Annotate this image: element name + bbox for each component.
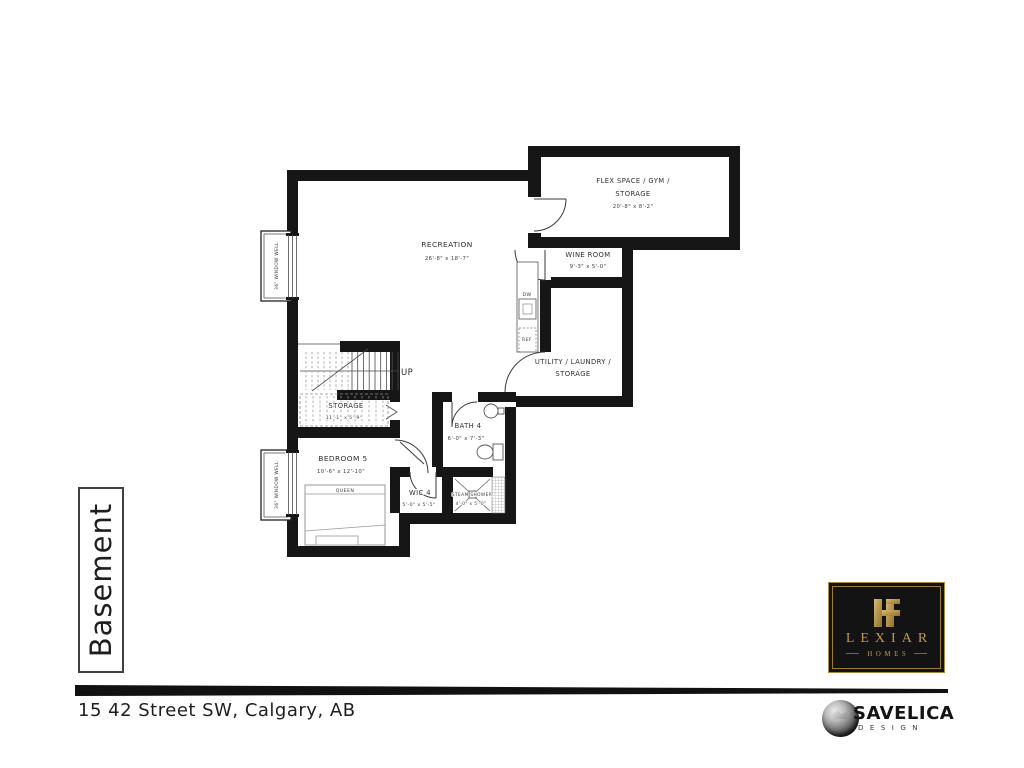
room-name: BATH 4 bbox=[455, 422, 482, 430]
builder-tagline-row: HOMES bbox=[846, 650, 928, 658]
sheet-title-box: Basement bbox=[78, 487, 124, 673]
window-well-label: 36" WINDOW WELL bbox=[274, 461, 280, 509]
room-steam-shower: STEAM SHOWER 4'-0" x 5'-0" bbox=[452, 492, 492, 507]
room-name: BEDROOM 5 bbox=[318, 454, 367, 463]
floor-plan-sheet: { "page": { "sheet_title": "Basement", "… bbox=[0, 0, 1024, 768]
bath-fixtures bbox=[477, 404, 504, 460]
designer-name: SAVELICA bbox=[853, 703, 954, 724]
room-bath: BATH 4 6'-0" x 7'-3" bbox=[448, 422, 485, 442]
room-dims: 9'-3" x 5'-0" bbox=[570, 264, 607, 270]
toilet-tank-icon bbox=[493, 444, 503, 460]
room-wic: WIC 4 5'-0" x 5'-5" bbox=[402, 489, 435, 508]
room-name: STEAM SHOWER bbox=[452, 492, 492, 498]
window-bottom bbox=[285, 450, 300, 517]
faucet-icon bbox=[498, 408, 504, 414]
tagline-rule-right bbox=[914, 653, 927, 654]
room-dims: 10'-6" x 12'-10" bbox=[317, 469, 365, 475]
sheet-title: Basement bbox=[84, 503, 118, 657]
toilet-bowl-icon bbox=[477, 445, 493, 459]
room-utility: UTILITY / LAUNDRY / STORAGE bbox=[535, 358, 612, 378]
room-name: WINE ROOM bbox=[565, 251, 610, 259]
bed-size-label: QUEEN bbox=[336, 488, 355, 494]
queen-bed: QUEEN bbox=[305, 485, 385, 545]
builder-logo: LEXIAR HOMES bbox=[828, 582, 945, 673]
room-dims: 6'-0" x 7'-3" bbox=[448, 436, 485, 442]
room-dims: 4'-0" x 5'-0" bbox=[456, 501, 487, 507]
room-dims: 20'-8" x 8'-2" bbox=[613, 204, 654, 210]
room-name: UTILITY / LAUNDRY / bbox=[535, 358, 612, 366]
builder-tagline: HOMES bbox=[864, 650, 910, 658]
designer-logo: SAVELICA DESIGN bbox=[822, 697, 997, 741]
room-dims: 26'-8" x 18'-7" bbox=[425, 256, 469, 262]
room-bedroom: BEDROOM 5 10'-6" x 12'-10" bbox=[317, 454, 368, 475]
room-dims: 5'-0" x 5'-5" bbox=[402, 502, 435, 508]
room-flex-space: FLEX SPACE / GYM / STORAGE 20'-8" x 8'-2… bbox=[596, 177, 670, 210]
room-name: RECREATION bbox=[421, 240, 472, 249]
room-wine: WINE ROOM 9'-3" x 5'-0" bbox=[565, 251, 610, 270]
footer-divider bbox=[75, 685, 948, 696]
builder-logo-frame: LEXIAR HOMES bbox=[832, 586, 941, 669]
fridge-label: REF bbox=[522, 337, 532, 343]
window-well-label: 36" WINDOW WELL bbox=[274, 242, 280, 290]
room-name: STORAGE bbox=[555, 370, 590, 378]
room-name: STORAGE bbox=[328, 402, 363, 410]
room-recreation: RECREATION 26'-8" x 18'-7" bbox=[421, 240, 472, 262]
window-top bbox=[285, 233, 300, 300]
tagline-rule-left bbox=[846, 653, 859, 654]
address-text: 15 42 Street SW, Calgary, AB bbox=[78, 700, 356, 721]
room-storage: STORAGE 11'-1" x 5'-9" bbox=[326, 402, 364, 421]
stairs-up-label: UP bbox=[401, 368, 413, 378]
sink-icon bbox=[484, 404, 498, 418]
room-name: WIC 4 bbox=[409, 489, 431, 497]
room-name: FLEX SPACE / GYM / bbox=[596, 177, 670, 185]
room-dims: 11'-1" x 5'-9" bbox=[326, 415, 363, 421]
room-name: STORAGE bbox=[615, 190, 650, 198]
designer-tagline: DESIGN bbox=[858, 724, 924, 732]
dishwasher-label: DW bbox=[522, 292, 531, 298]
builder-name: LEXIAR bbox=[840, 631, 933, 647]
lexiar-monogram-icon bbox=[872, 598, 902, 628]
